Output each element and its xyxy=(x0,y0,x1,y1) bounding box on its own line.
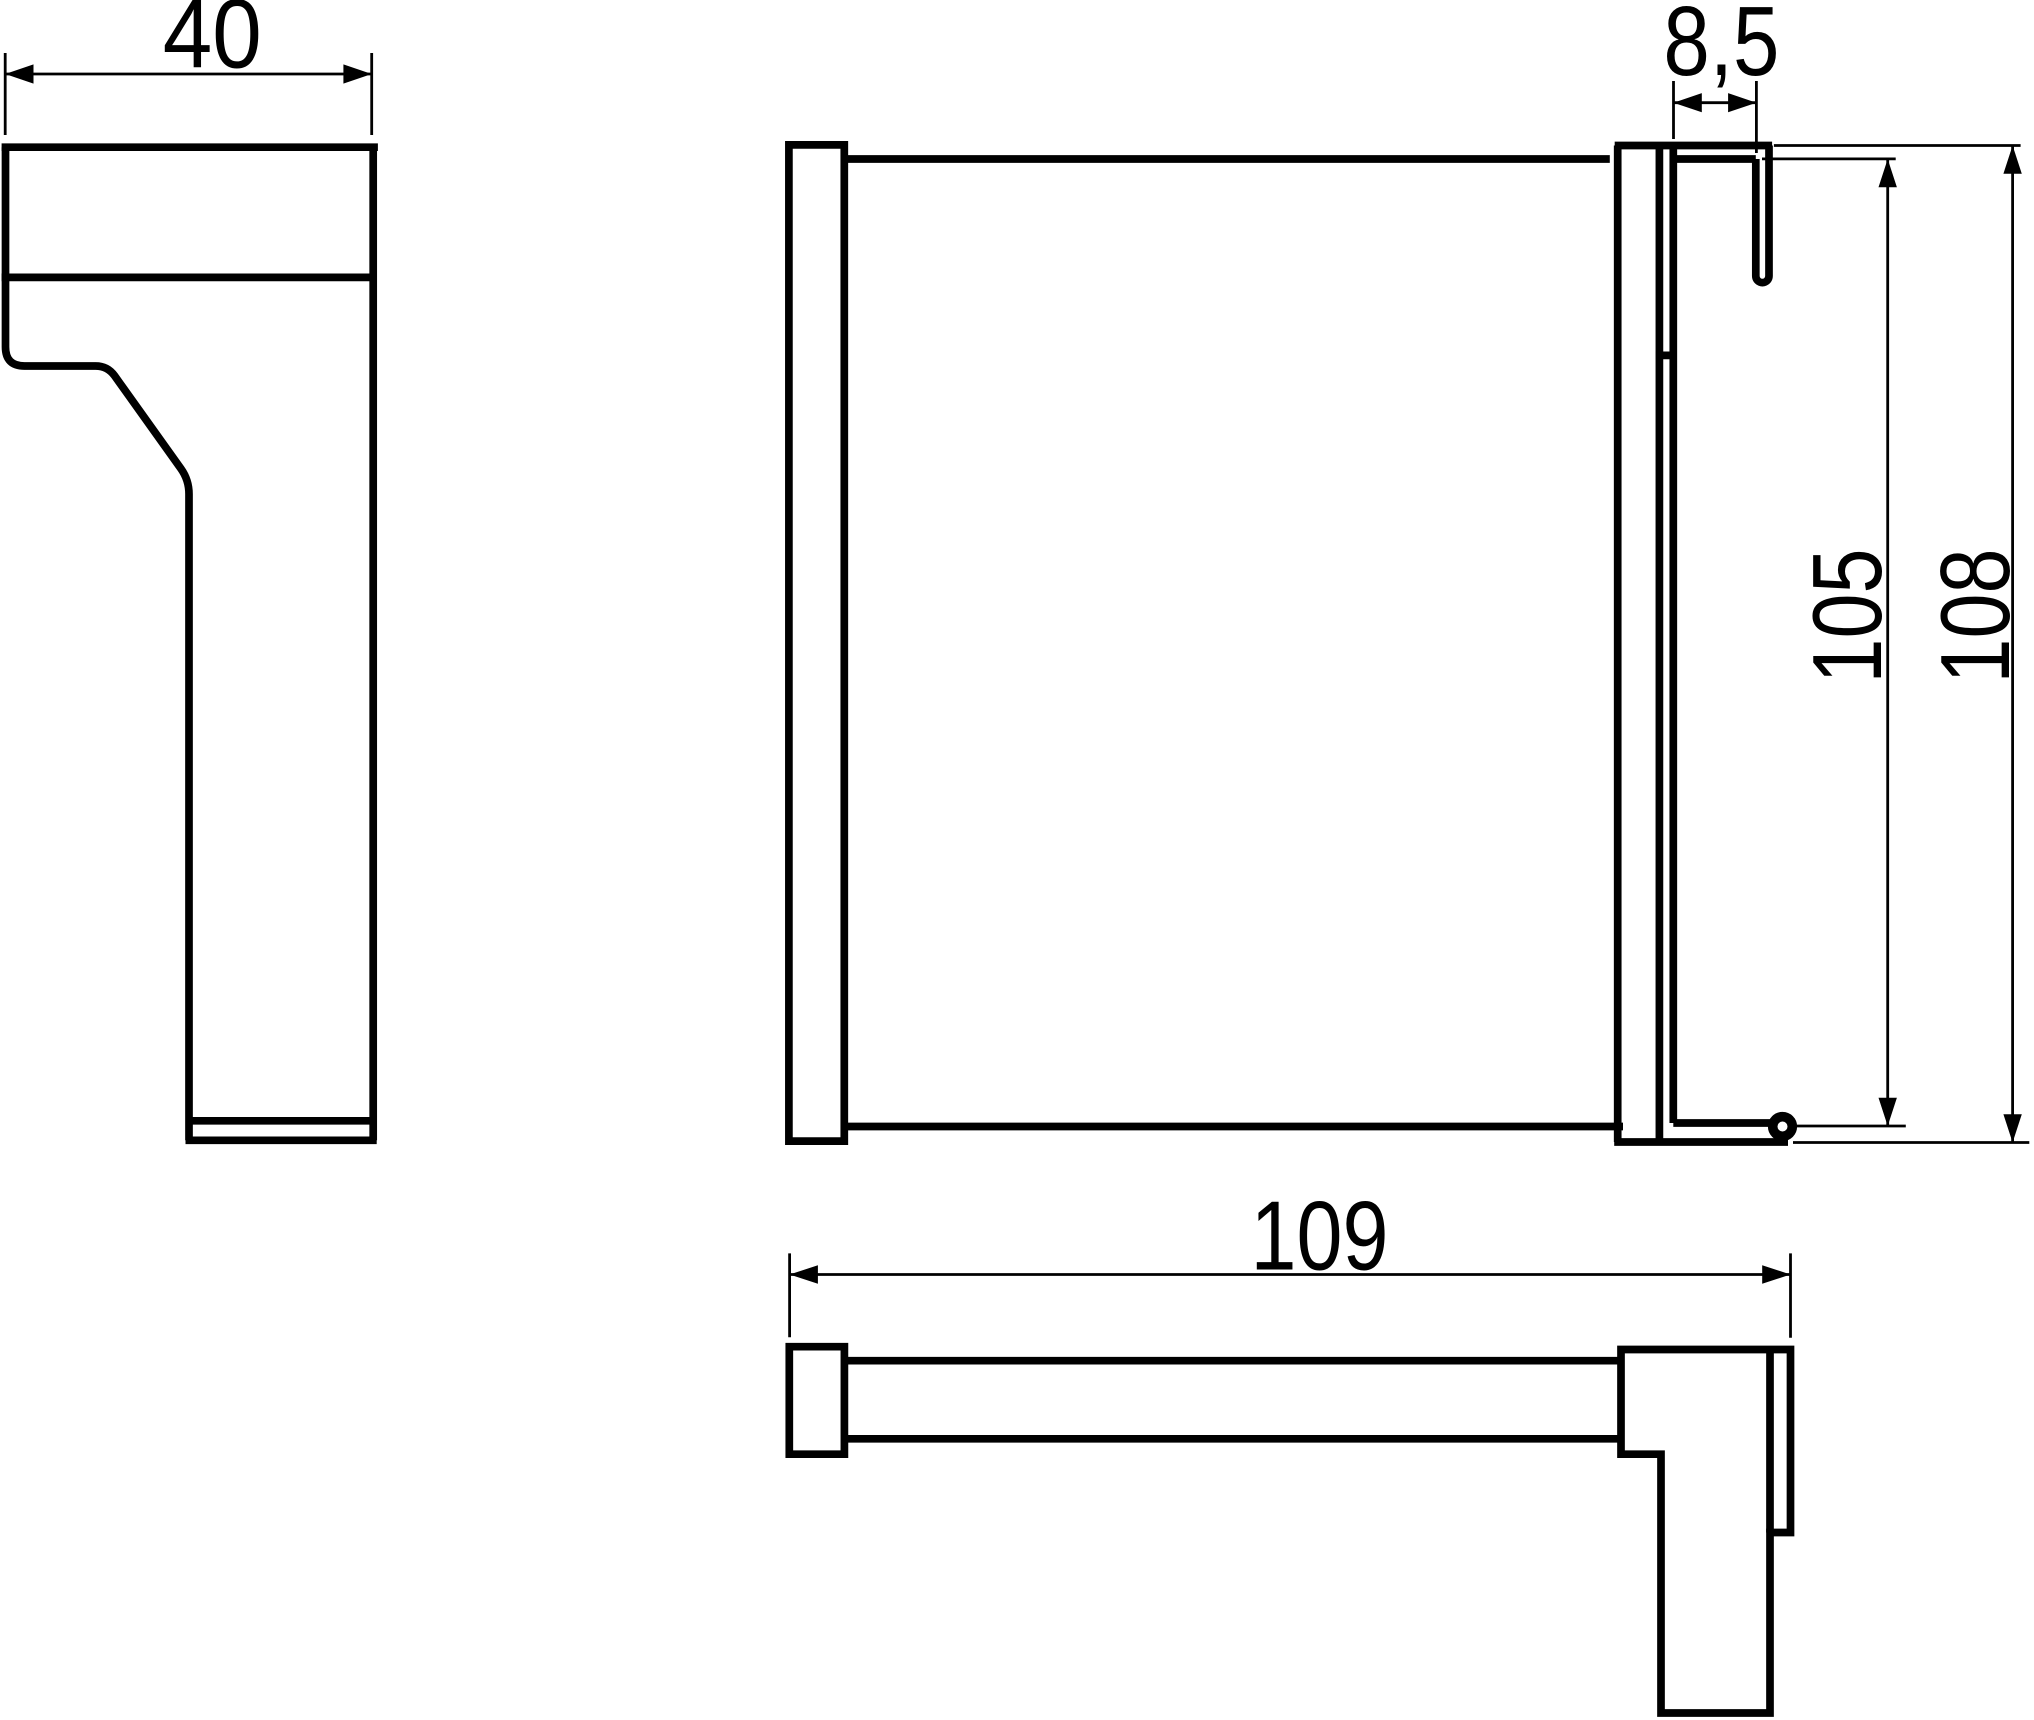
svg-text:109: 109 xyxy=(1251,1181,1389,1291)
svg-text:40: 40 xyxy=(163,0,262,89)
svg-text:8,5: 8,5 xyxy=(1663,0,1779,96)
svg-text:108: 108 xyxy=(1920,549,2030,684)
svg-text:105: 105 xyxy=(1792,549,1902,684)
